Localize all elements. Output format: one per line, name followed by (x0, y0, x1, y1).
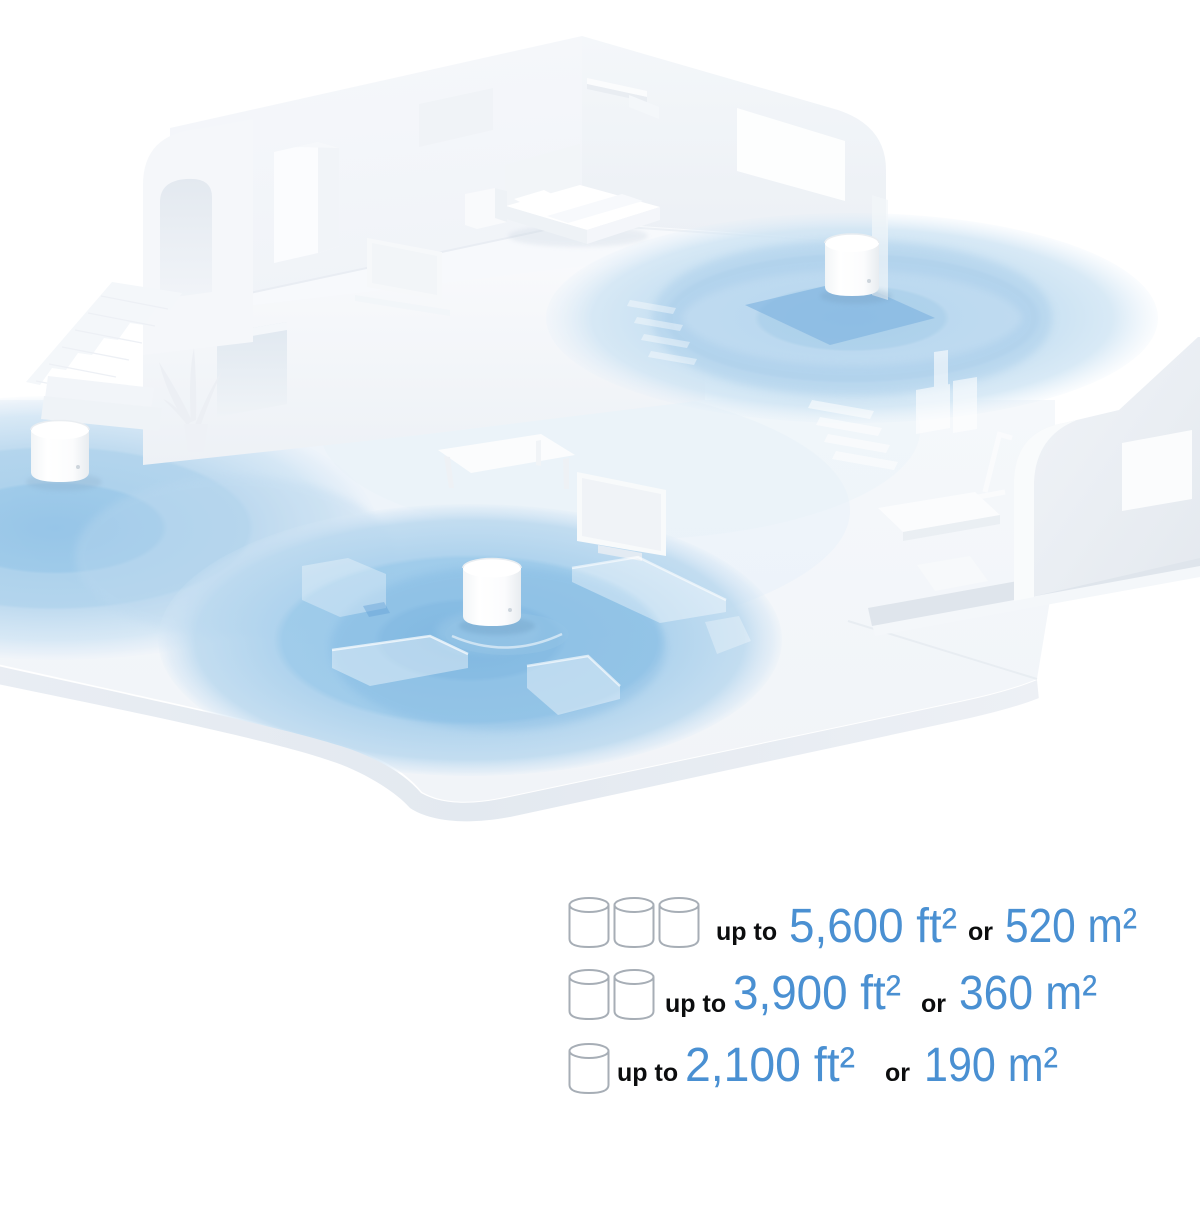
svg-text:2,100 ft²: 2,100 ft² (685, 1039, 855, 1092)
svg-text:190 m²: 190 m² (924, 1039, 1058, 1092)
svg-text:or: or (921, 990, 946, 1018)
svg-text:or: or (968, 918, 993, 946)
svg-text:3,900 ft²: 3,900 ft² (733, 967, 901, 1020)
svg-text:up to: up to (617, 1059, 678, 1087)
svg-text:or: or (885, 1059, 910, 1087)
svg-text:5,600 ft²: 5,600 ft² (789, 900, 957, 953)
svg-text:360 m²: 360 m² (959, 967, 1097, 1020)
svg-text:up to: up to (665, 990, 726, 1018)
svg-text:520 m²: 520 m² (1005, 900, 1137, 953)
svg-text:up to: up to (716, 918, 777, 946)
